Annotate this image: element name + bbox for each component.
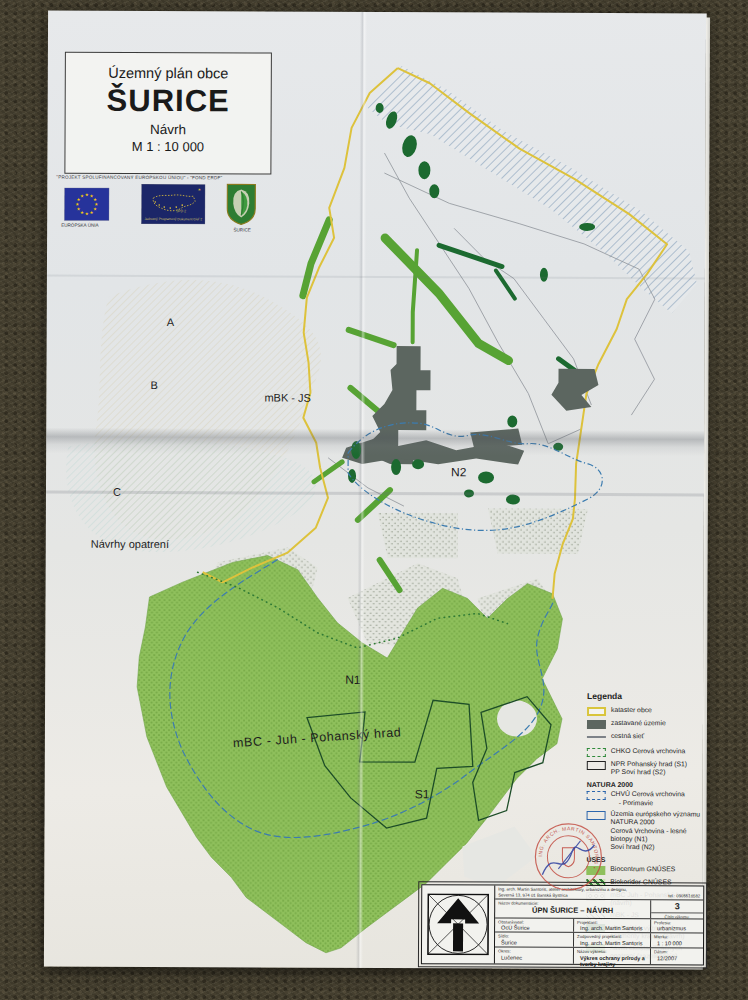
legend-label: Územia európskeho významu NATURA 2000 Ce… [610, 810, 704, 851]
table-row: Okres: Lučenec Názov výkresu: Výkres och… [495, 948, 703, 965]
map-title-box: Územný plán obce ŠURICE Návrh M 1 : 10 0… [64, 52, 272, 175]
profession-cell: Profesia: urbanizmus [651, 919, 703, 933]
legend-header-natura: NATURA 2000 [587, 781, 705, 789]
jpd2-caption: Jednotný Programový Dokument Cieľ 2 [144, 217, 202, 221]
map-label-s1: S1 [415, 787, 430, 801]
map-label-n2: N2 [451, 465, 466, 479]
map-label-n1: N1 [345, 673, 360, 687]
surice-crest-icon [226, 183, 256, 225]
photo-of-map: Územný plán obce ŠURICE Návrh M 1 : 10 0… [0, 0, 748, 1000]
svg-text:★: ★ [75, 202, 79, 207]
funding-header: "PROJEKT SPOLUFINANCOVANÝ EURÓPSKOU ÚNIO… [56, 175, 222, 181]
sheet-number: 3 [651, 901, 703, 911]
legend-swatch-cesta [587, 736, 606, 738]
dark-green-corridors [438, 245, 587, 379]
legend-item-kataster: kataster obce [587, 706, 705, 716]
map-subtitle: Územný plán obce [66, 65, 271, 82]
legend-title: Legenda [587, 691, 705, 702]
legend-swatch-chko [587, 748, 606, 757]
legend-label: cestná sieť [611, 732, 644, 740]
eu-flag-icon: ★★★ ★★★ ★★★ ★★★ [64, 188, 109, 221]
legend-item-cestna-siet: cestná sieť [587, 732, 705, 741]
firm-tel: tel.: 0905516582 [668, 893, 700, 899]
svg-text:★: ★ [80, 194, 84, 199]
legend-swatch-kataster [587, 706, 606, 715]
table-row: Obstarávateľ: OcÚ Šurice Projektant: Ing… [495, 918, 703, 933]
svg-text:✶: ✶ [197, 187, 201, 192]
drawing-name-cell: Názov výkresu: Výkres ochrany prírody a … [574, 948, 651, 964]
district-cell: Okres: Lučenec [495, 948, 574, 964]
architect-logo-cell [422, 885, 495, 963]
legend-swatch-npr [587, 761, 606, 770]
jpd2-program-logo: ✶ JPD 2 Jednotný Programový Dokument Cie… [141, 184, 205, 224]
legend-swatch-zastavane [587, 719, 606, 728]
legend-label: Biocentrum GNÚSES [610, 865, 675, 873]
sheet-number-cell: 3 Číslo výkresu: [650, 900, 703, 918]
seat-cell: Sídlo: Šurice [495, 933, 574, 947]
legend-item-zastavane: zastavané územie [587, 719, 705, 729]
legend-item-npr: NPR Pohanský hrad (S1) PP Soví hrad (S2) [587, 760, 705, 777]
map-phase: Návrh [66, 122, 271, 138]
legend-label: kataster obce [611, 706, 652, 714]
map-label-zone-c: C [113, 486, 121, 498]
legend-label: NPR Pohanský hrad (S1) PP Soví hrad (S2) [611, 760, 687, 777]
svg-text:★: ★ [80, 210, 84, 215]
legend-label: zastavané územie [611, 719, 666, 727]
doc-title-cell: Názov dokumentácie: ÚPN ŠURICE – NÁVRH [495, 899, 650, 918]
svg-text:★: ★ [85, 192, 89, 197]
legend-label: CHKO Cerová vrchovina [611, 747, 685, 755]
svg-text:★: ★ [77, 206, 81, 211]
map-label-mbk-js: mBK - JS [264, 392, 311, 404]
architect-logo-icon [427, 893, 489, 955]
svg-text:★: ★ [90, 210, 94, 215]
map-label-navrhy-opatreni: Návrhy opatrení [91, 538, 169, 550]
map-label-zone-b: B [150, 379, 157, 391]
scale-cell: Mierka: 1 : 10 000 [651, 934, 703, 948]
client-cell: Obstarávateľ: OcÚ Šurice [495, 918, 574, 932]
eu-flag-label: EURÓPSKA ÚNIA [61, 223, 99, 228]
map-scale: M 1 : 10 000 [65, 139, 270, 155]
doc-title: ÚPN ŠURICE – NÁVRH [495, 905, 650, 915]
designer-cell: Projektant: Ing. arch. Martin Santoris [574, 919, 651, 933]
titleblock-main: Ing. arch. Martin Santoris, ateliér arch… [495, 886, 703, 965]
legend-item-chvu: CHVÚ Cerová vrchovina - Porimavie [587, 790, 705, 807]
responsible-cell: Zodpovedný projektant: Ing. arch. Martin… [574, 933, 651, 947]
legend-swatch-chvu [587, 791, 606, 800]
doc-title-row: Názov dokumentácie: ÚPN ŠURICE – NÁVRH 3… [495, 899, 703, 919]
map-title: ŠURICE [66, 83, 271, 120]
surice-crest-label: ŠURICE [227, 227, 257, 232]
svg-text:★: ★ [93, 207, 97, 212]
svg-text:★: ★ [85, 211, 89, 216]
architect-stamp: ING. ARCH. MARTIN SANTORIS • [528, 817, 608, 897]
map-sheet: Územný plán obce ŠURICE Návrh M 1 : 10 0… [44, 11, 707, 970]
legend-item-chko: CHKO Cerová vrchovina [587, 747, 705, 757]
date-cell: Dátum: 12/2007 [651, 948, 703, 964]
map-label-zone-a: A [167, 316, 174, 328]
jpd2-code: JPD 2 [176, 209, 186, 213]
legend-label: CHVÚ Cerová vrchovina - Porimavie [611, 790, 685, 807]
table-row: Sídlo: Šurice Zodpovedný projektant: Ing… [495, 933, 703, 948]
